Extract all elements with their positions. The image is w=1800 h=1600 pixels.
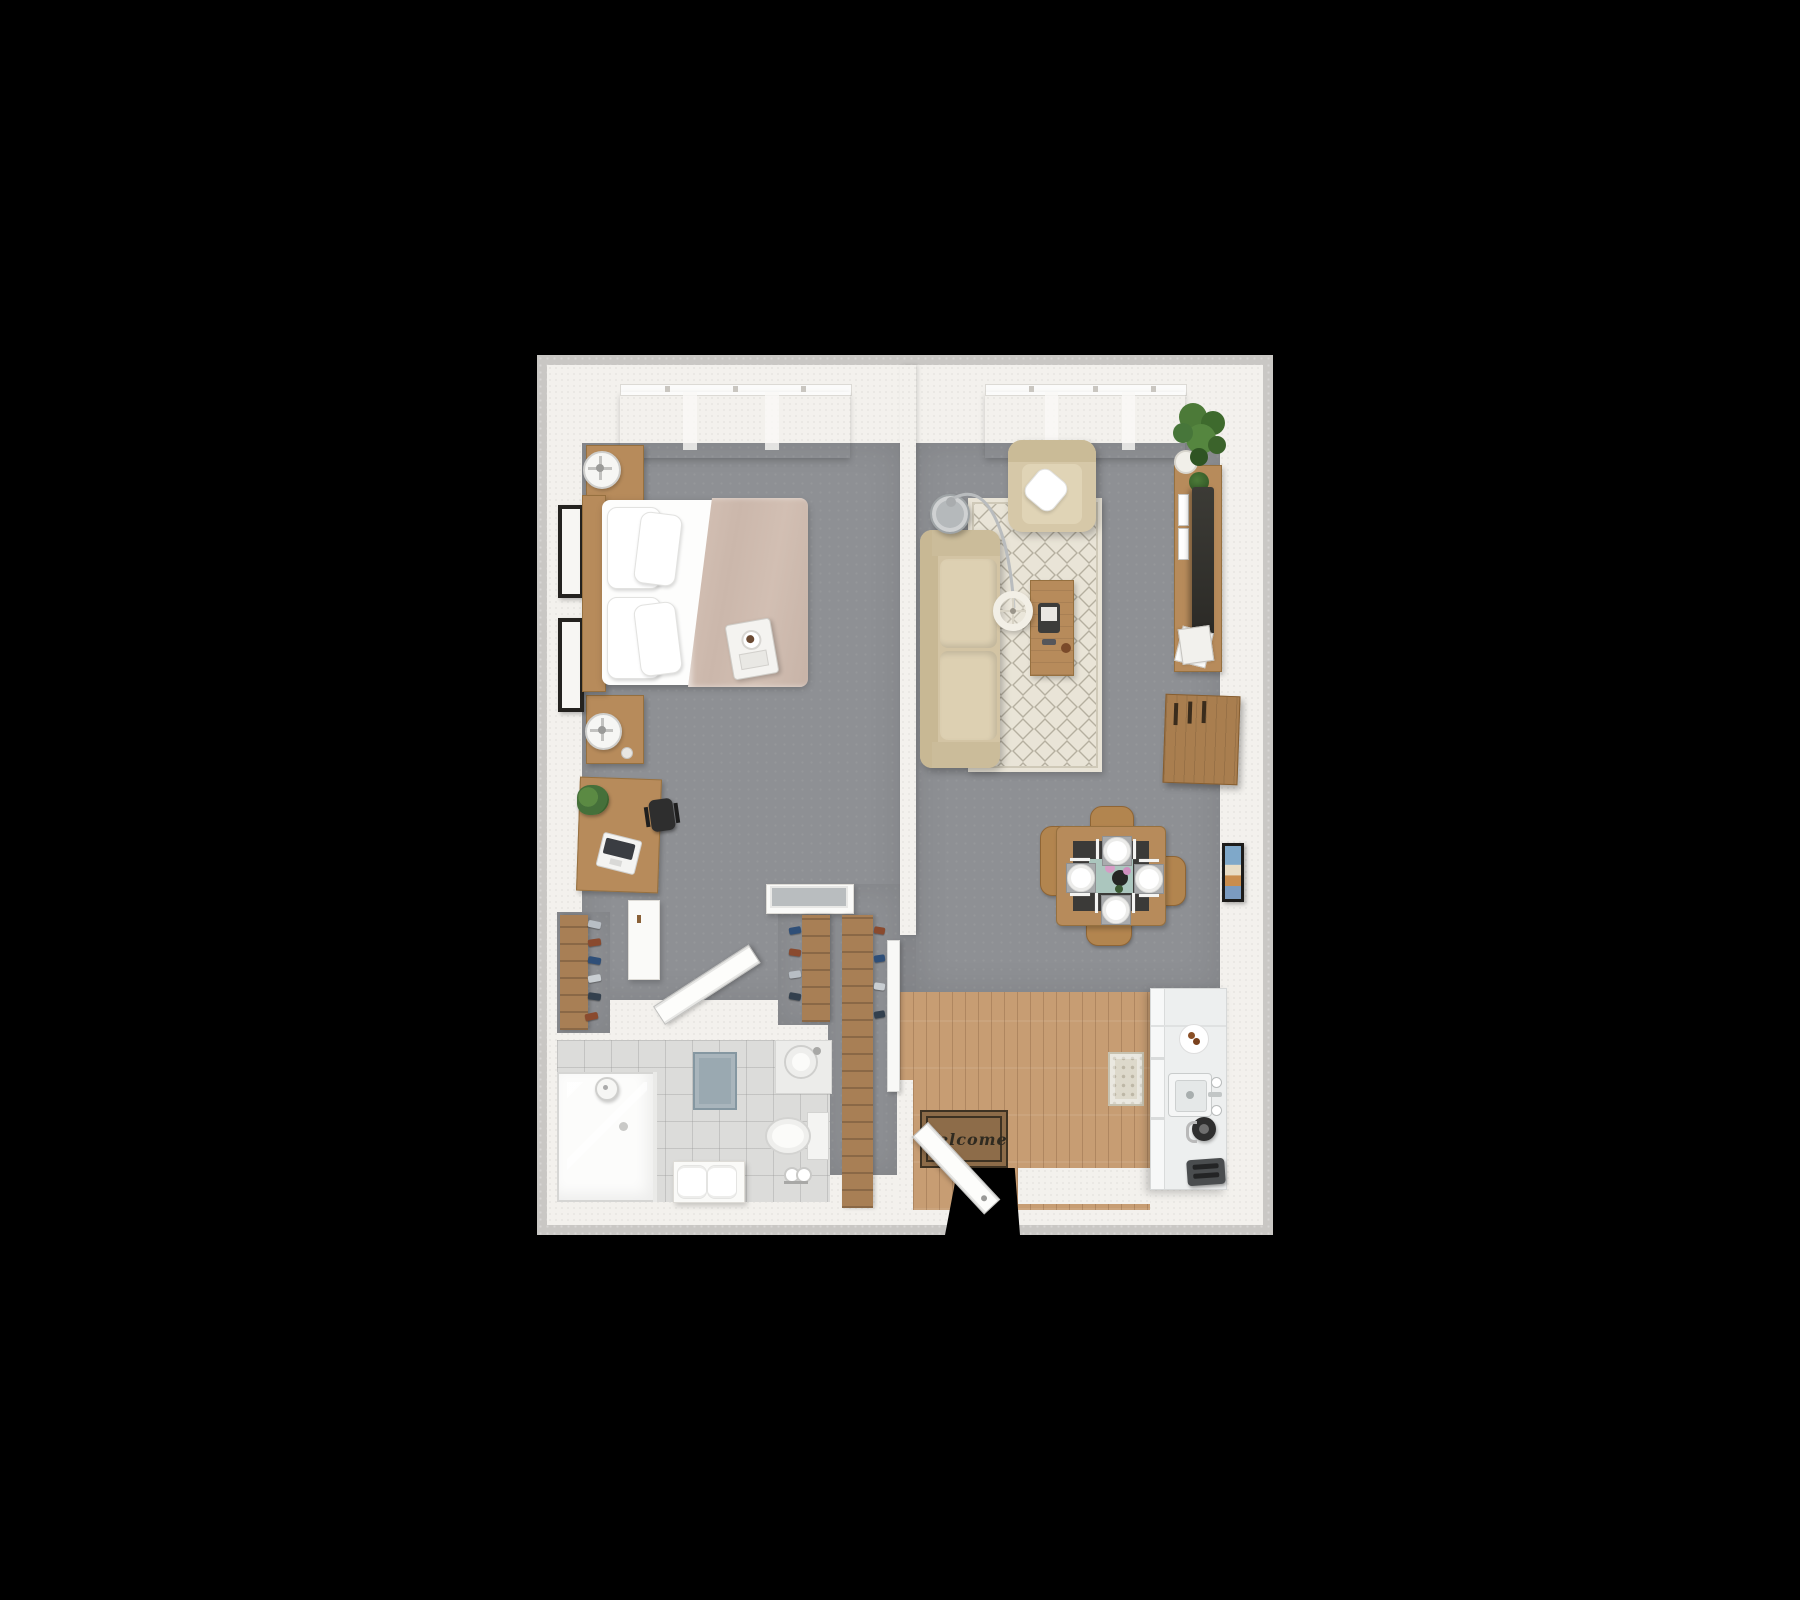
bedroom-curtain-gap [683,392,697,450]
tray-napkin [739,650,769,671]
dinner-plate [1102,896,1130,924]
storage-cabinet [1162,694,1240,786]
magazine [1178,625,1215,665]
apartment-plan: Welcome [537,355,1273,1235]
entry-wall-patch [1018,1168,1150,1204]
toilet-paper-stand [782,1161,810,1187]
stand-bar [784,1181,808,1184]
wall-art-picture [1225,846,1241,899]
entry-door-handle [980,1194,988,1202]
cookie-plate [1179,1024,1209,1054]
table-fan-upper [583,451,621,489]
dinner-plate [1067,864,1095,892]
laptop-keyboard [603,838,636,861]
sofa-cushion [940,651,997,740]
console-frame [1178,528,1189,560]
chair-seat [648,797,676,832]
bedroom-curtains [620,392,850,458]
sink-faucet [813,1047,821,1055]
shower-glass-panel [653,1072,657,1202]
wardrobe-shelf-tall [842,915,873,1208]
dining-table [1056,826,1166,926]
kitchen-rug [1108,1052,1144,1106]
dinner-plate [1103,837,1131,865]
centerpiece-flower [1123,867,1131,875]
divider-wall-upper [900,365,916,935]
hall-cabinet-top [770,886,848,908]
rolled-towel [707,1165,737,1199]
faucet-spout [1208,1092,1222,1097]
faucet-handle [1211,1105,1222,1116]
sofa-armrest [932,742,1000,768]
fan-hub [598,726,606,734]
counter-cabinet-rail [1151,989,1165,1189]
wall-frame-upper [558,505,584,598]
office-chair [642,791,682,839]
cutlery [1070,858,1090,861]
cutlery [1139,859,1159,862]
cutlery [1132,893,1135,913]
cutlery [1095,893,1098,913]
breakfast-tray [724,617,779,680]
television [1192,487,1214,637]
divider-wall-lower [897,1080,913,1210]
dinner-plate [1135,865,1163,893]
centerpiece-leaf [1115,885,1123,893]
laptop-touchpad [609,858,622,867]
pendant-ring-lamp [993,591,1033,631]
shoe [789,948,802,957]
cutlery [1070,893,1090,896]
cabinet-slot [1202,701,1207,723]
cookie [1193,1038,1200,1045]
shower-head-center [603,1085,608,1090]
console-frame [1178,494,1189,526]
toilet-bowl [765,1117,811,1155]
coaster [1061,643,1071,653]
bed-pillow [633,601,683,678]
kitchen-sink [1168,1073,1212,1117]
living-curtain-gap [1122,392,1135,450]
bedroom-rail-bracket [733,386,738,392]
cutlery [1096,839,1099,859]
cabinet-divider [1151,1117,1164,1120]
cabinet-slot [1173,703,1178,725]
sofa-back [920,530,938,768]
kettle-handle [1186,1121,1197,1143]
toaster-slot [1192,1163,1218,1170]
living-rail-bracket [1029,386,1034,392]
shower-head [595,1077,619,1101]
leaning-mirror [887,940,900,1092]
floor-plan-image: Welcome [0,0,1800,1600]
toaster-slot [1193,1172,1219,1179]
bed-pillow [633,511,683,588]
cabinet-slot [1188,702,1193,724]
divider-opening-floor [900,935,916,992]
faucet-handle [1211,1077,1222,1088]
toaster [1186,1158,1226,1187]
armchair-back [1008,440,1096,462]
hall-closet-shelf [802,915,830,1022]
magazine-stack [1178,627,1212,665]
shoe [874,982,886,990]
table-fan-lower [585,713,622,750]
kettle-lid [1199,1124,1209,1134]
bedroom-closet-shelf [560,915,588,1030]
cutlery [1139,894,1159,897]
nightstand-cup [621,747,633,759]
sink-drain [1186,1091,1194,1099]
lamp-center [1010,608,1016,614]
bedroom-curtain-gap [765,392,779,450]
shower-drain [619,1122,628,1131]
rolled-towel [677,1165,707,1199]
fan-hub [596,464,604,472]
cabinet-handle [637,915,641,923]
electric-kettle [1192,1117,1216,1141]
bedroom-side-cabinet [628,900,660,980]
cabinet-divider [1151,1057,1164,1060]
bedroom-rail-bracket [665,386,670,392]
corner-plant [1169,393,1233,477]
wall-frame-lower [558,618,584,712]
living-rail-bracket [1093,386,1098,392]
cutlery [1133,839,1136,859]
wall-art-frame [1222,843,1244,902]
living-rail-bracket [1151,386,1156,392]
bedroom-rail-bracket [801,386,806,392]
remote-control [1042,639,1056,645]
bath-mat [693,1052,737,1110]
